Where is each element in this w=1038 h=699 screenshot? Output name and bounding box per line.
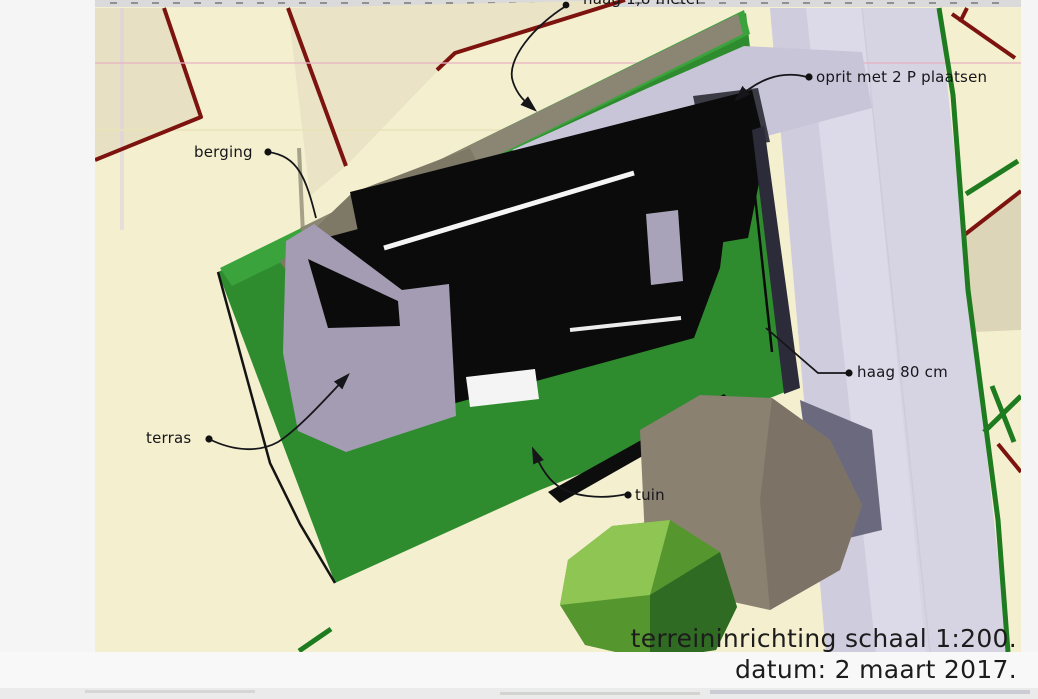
annotation-haag-1-8-meter: haag 1,8 meter bbox=[583, 0, 702, 8]
annotation-haag-80-cm: haag 80 cm bbox=[857, 364, 948, 381]
roof-chimney bbox=[646, 210, 683, 285]
site-plan-drawing bbox=[0, 0, 1038, 699]
annotation-terras: terras bbox=[146, 430, 191, 447]
annotation-berging: berging bbox=[194, 144, 253, 161]
site-plan-page: haag 1,8 meter oprit met 2 P plaatsen be… bbox=[0, 0, 1038, 699]
annotation-oprit: oprit met 2 P plaatsen bbox=[816, 69, 987, 86]
title-scale-line: terreininrichting schaal 1:200. bbox=[631, 624, 1017, 653]
title-date-line: datum: 2 maart 2017. bbox=[735, 655, 1017, 684]
annotation-tuin: tuin bbox=[635, 487, 665, 504]
